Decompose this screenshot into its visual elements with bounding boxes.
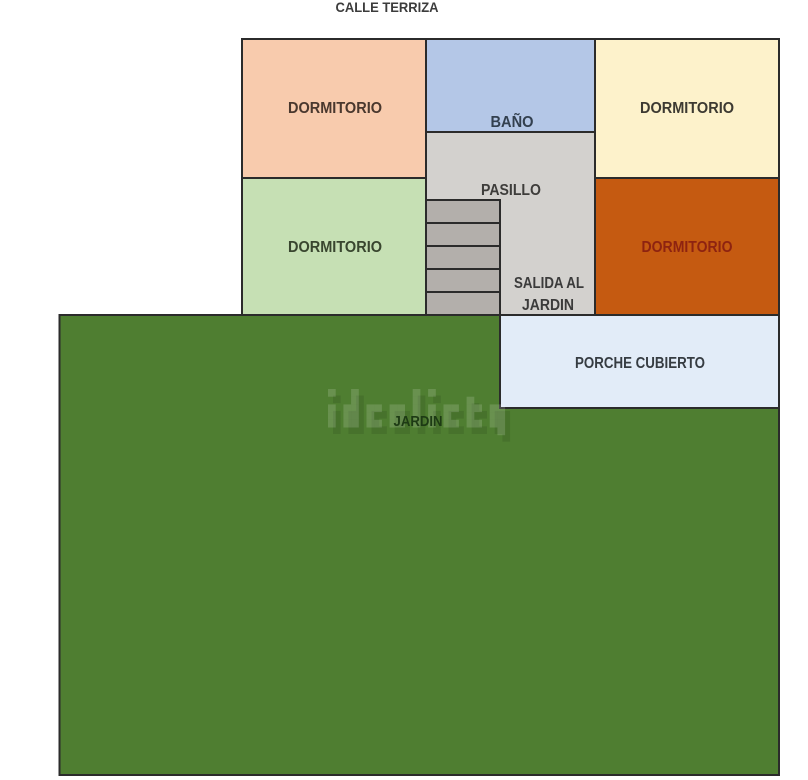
svg-text:JARDIN: JARDIN (522, 297, 574, 314)
svg-text:CALLE TERRIZA: CALLE TERRIZA (336, 0, 439, 15)
svg-text:DORMITORIO: DORMITORIO (288, 100, 382, 117)
svg-text:DORMITORIO: DORMITORIO (642, 239, 733, 256)
svg-text:BAÑO: BAÑO (491, 111, 534, 131)
svg-text:PASILLO: PASILLO (481, 182, 541, 199)
svg-text:DORMITORIO: DORMITORIO (288, 239, 382, 256)
svg-text:DORMITORIO: DORMITORIO (640, 100, 734, 117)
svg-text:PORCHE CUBIERTO: PORCHE CUBIERTO (575, 355, 705, 372)
svg-text:SALIDA AL: SALIDA AL (514, 275, 584, 292)
svg-text:JARDIN: JARDIN (394, 413, 443, 430)
